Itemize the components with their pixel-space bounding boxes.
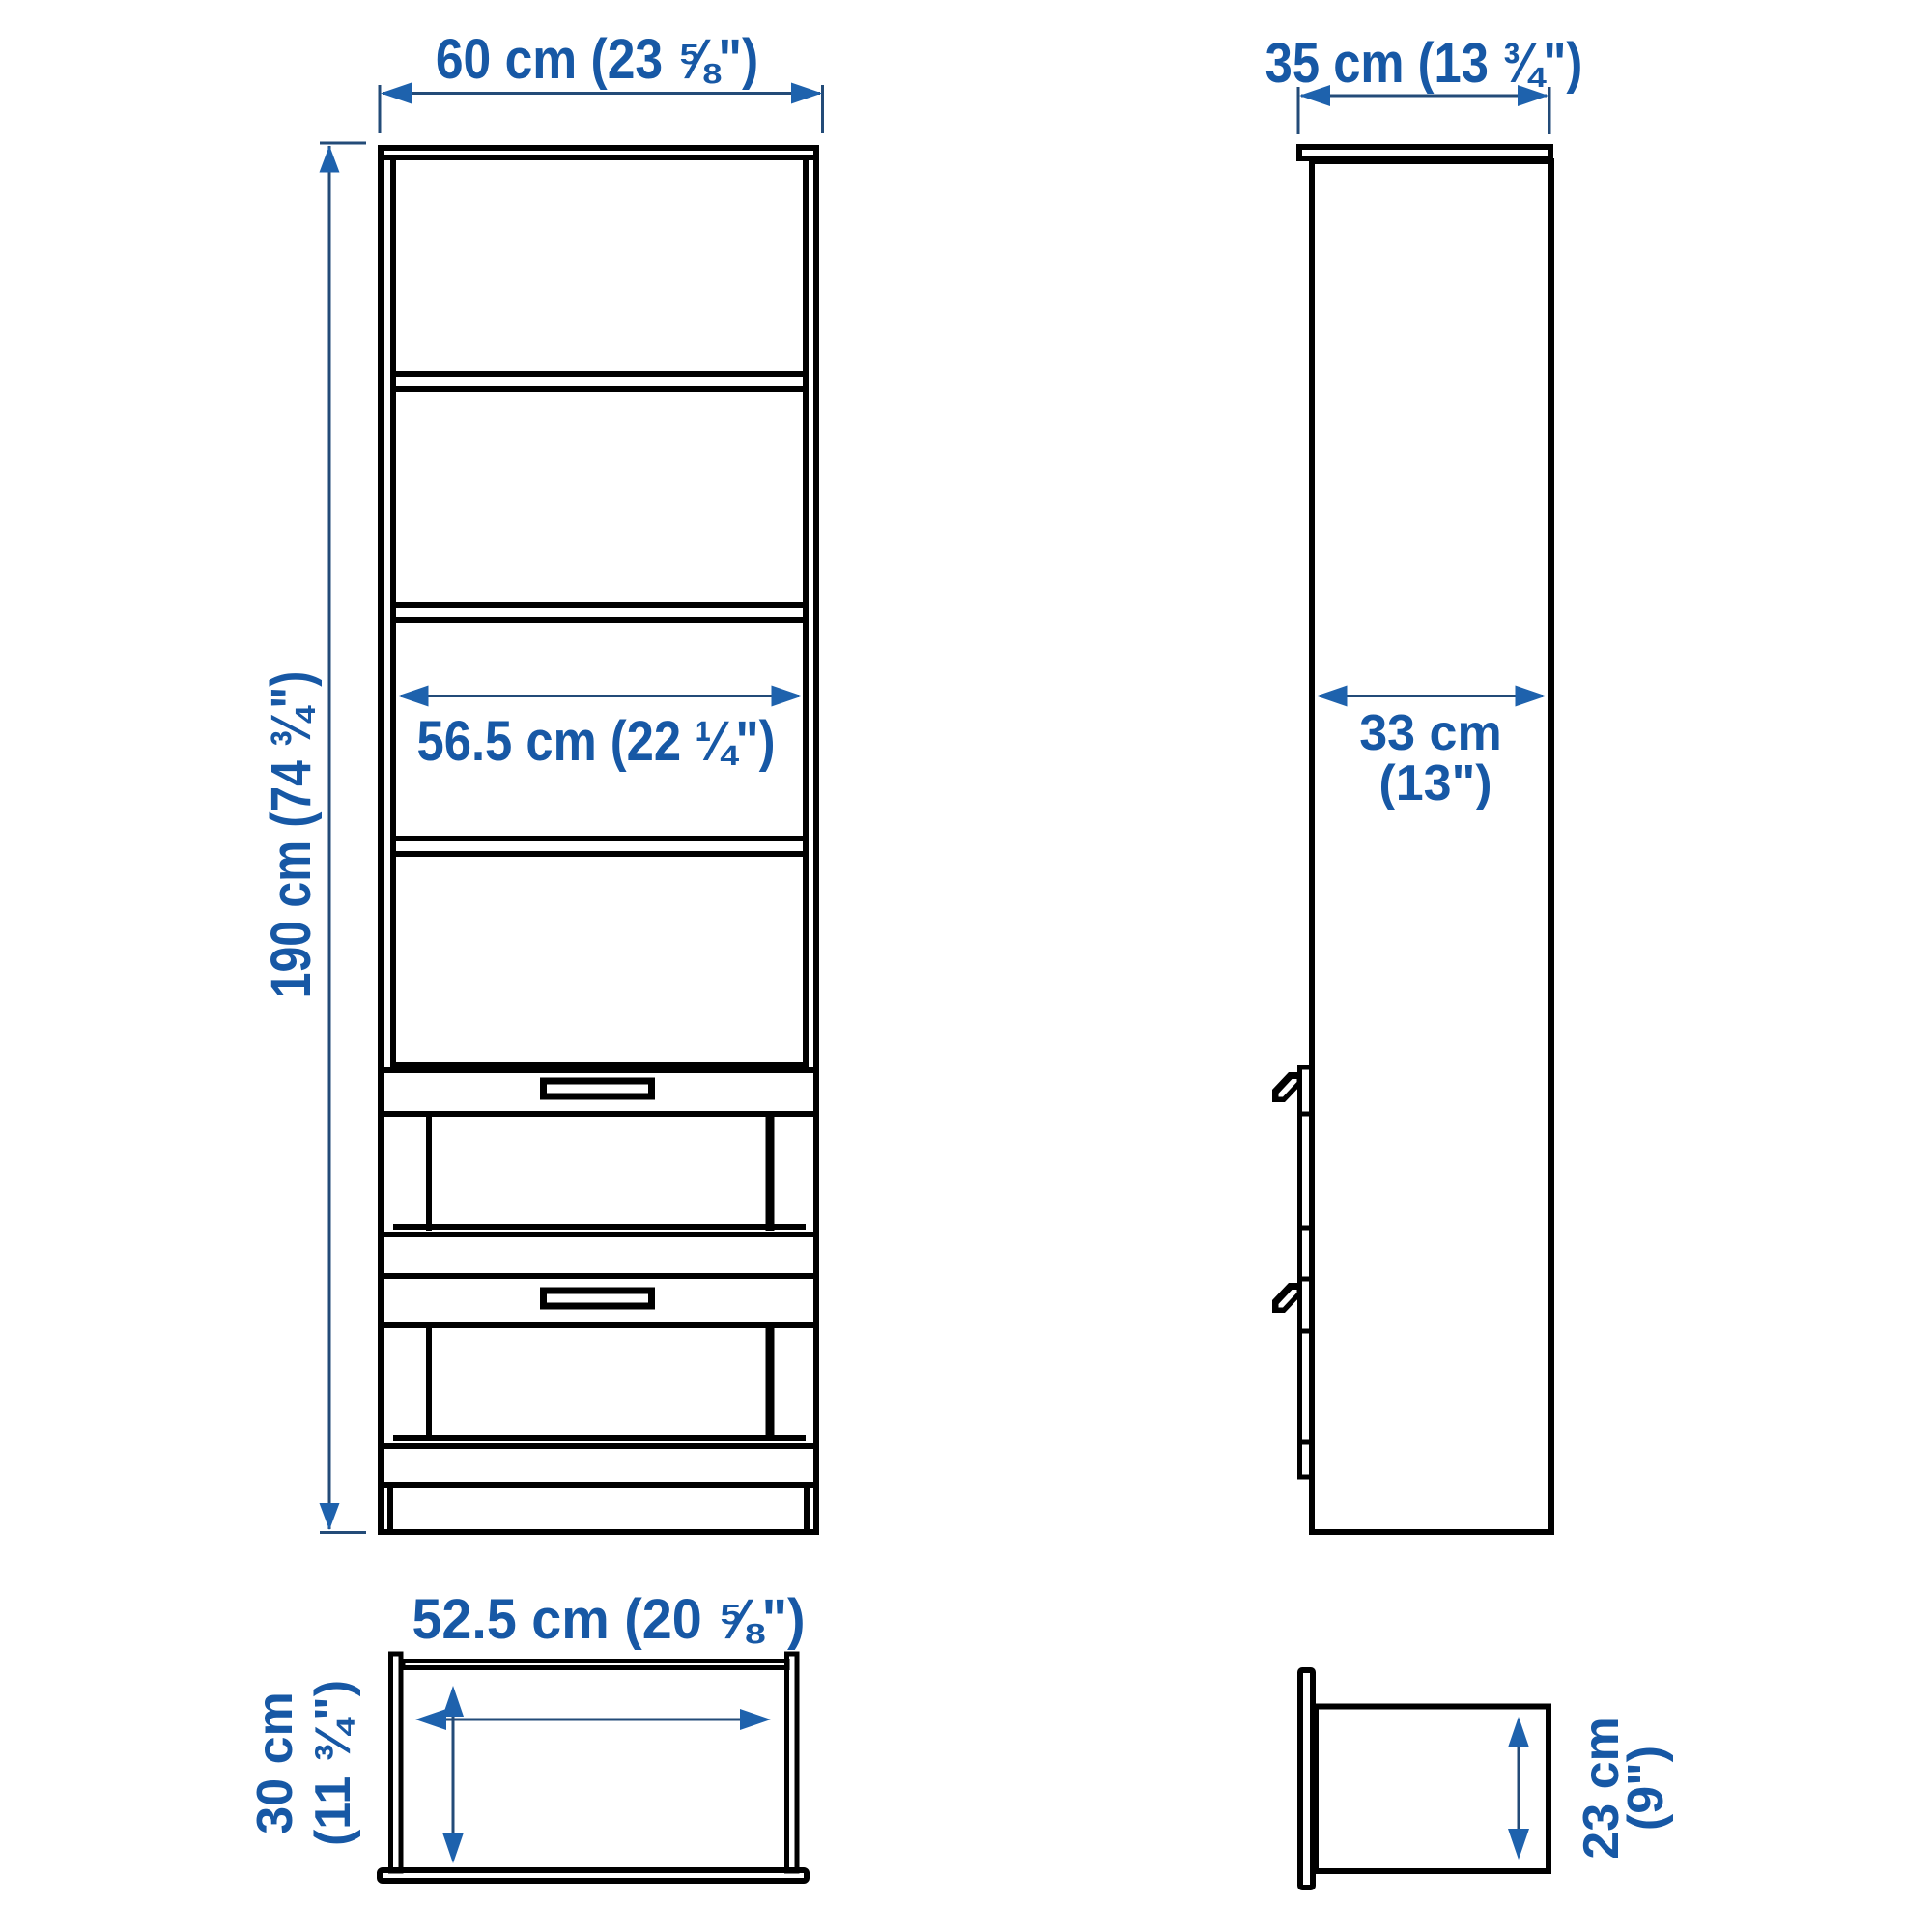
svg-text:190 cm (74 ¾"): 190 cm (74 ¾") — [261, 671, 323, 998]
svg-text:(11 ¾"): (11 ¾") — [305, 1680, 361, 1846]
svg-text:35 cm (13 ¾"): 35 cm (13 ¾") — [1265, 32, 1583, 95]
svg-text:(9"): (9") — [1618, 1746, 1674, 1831]
svg-text:60 cm (23 ⅝"): 60 cm (23 ⅝") — [436, 27, 758, 90]
svg-text:56.5 cm (22 ¼"): 56.5 cm (22 ¼") — [417, 710, 776, 773]
svg-text:(13"): (13") — [1378, 755, 1492, 811]
svg-text:30 cm: 30 cm — [247, 1691, 303, 1833]
svg-text:33 cm: 33 cm — [1359, 705, 1501, 761]
svg-text:52.5 cm (20 ⅝"): 52.5 cm (20 ⅝") — [412, 1589, 805, 1651]
